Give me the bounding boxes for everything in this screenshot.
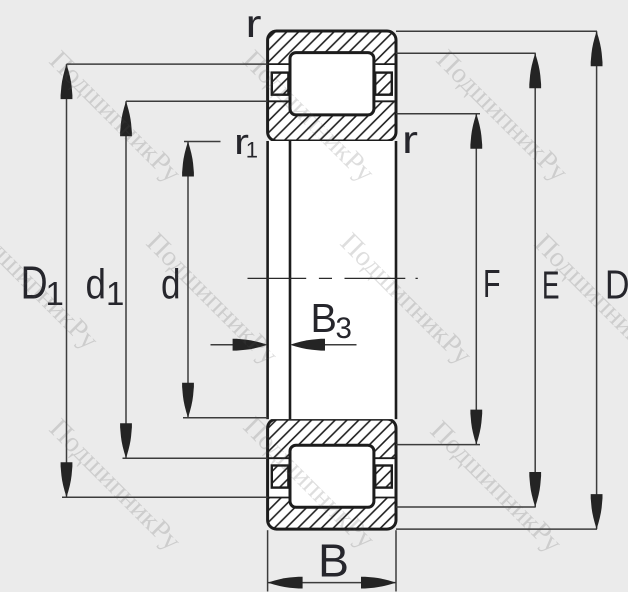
svg-text:F: F: [483, 263, 501, 306]
svg-text:r: r: [402, 119, 418, 162]
svg-text:B: B: [318, 535, 349, 587]
svg-text:ПодшипникРу: ПодшипникРу: [430, 44, 574, 188]
svg-text:ПодшипникРу: ПодшипникРу: [43, 45, 187, 189]
svg-text:1: 1: [246, 138, 258, 163]
svg-text:d: d: [86, 261, 107, 308]
svg-text:B: B: [311, 295, 337, 341]
svg-text:3: 3: [336, 312, 352, 345]
svg-text:r: r: [246, 3, 262, 46]
svg-text:1: 1: [106, 275, 124, 312]
svg-text:ПодшипникРу: ПодшипникРу: [424, 415, 568, 559]
